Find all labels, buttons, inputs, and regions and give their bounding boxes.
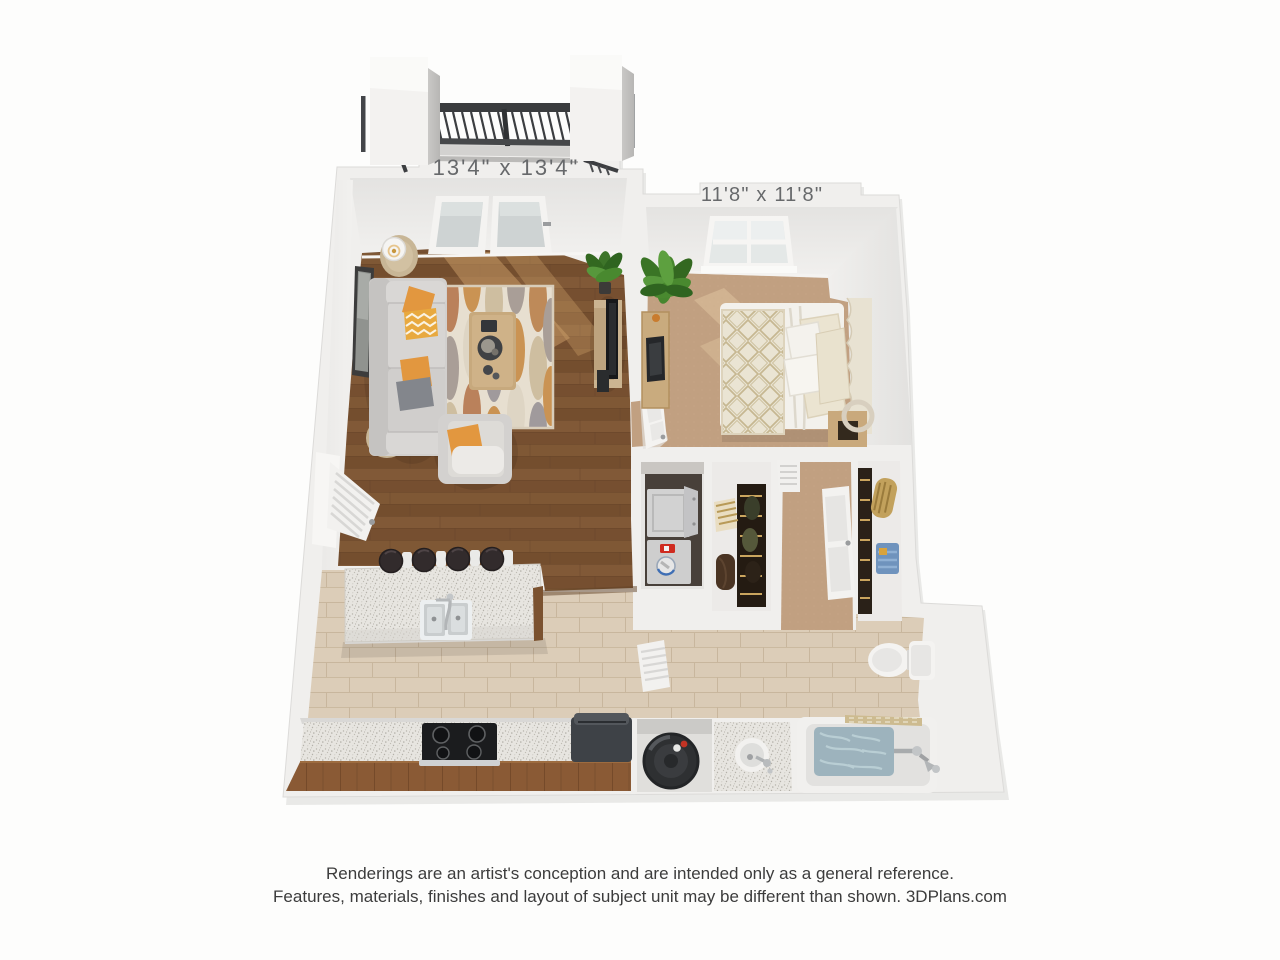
svg-text:Features, materials, finishes: Features, materials, finishes and layout…	[273, 887, 1007, 906]
svg-text:13'4" x 13'4": 13'4" x 13'4"	[433, 155, 580, 180]
svg-text:Renderings are an artist's con: Renderings are an artist's conception an…	[326, 864, 954, 883]
svg-text:11'8" x 11'8": 11'8" x 11'8"	[701, 184, 823, 206]
